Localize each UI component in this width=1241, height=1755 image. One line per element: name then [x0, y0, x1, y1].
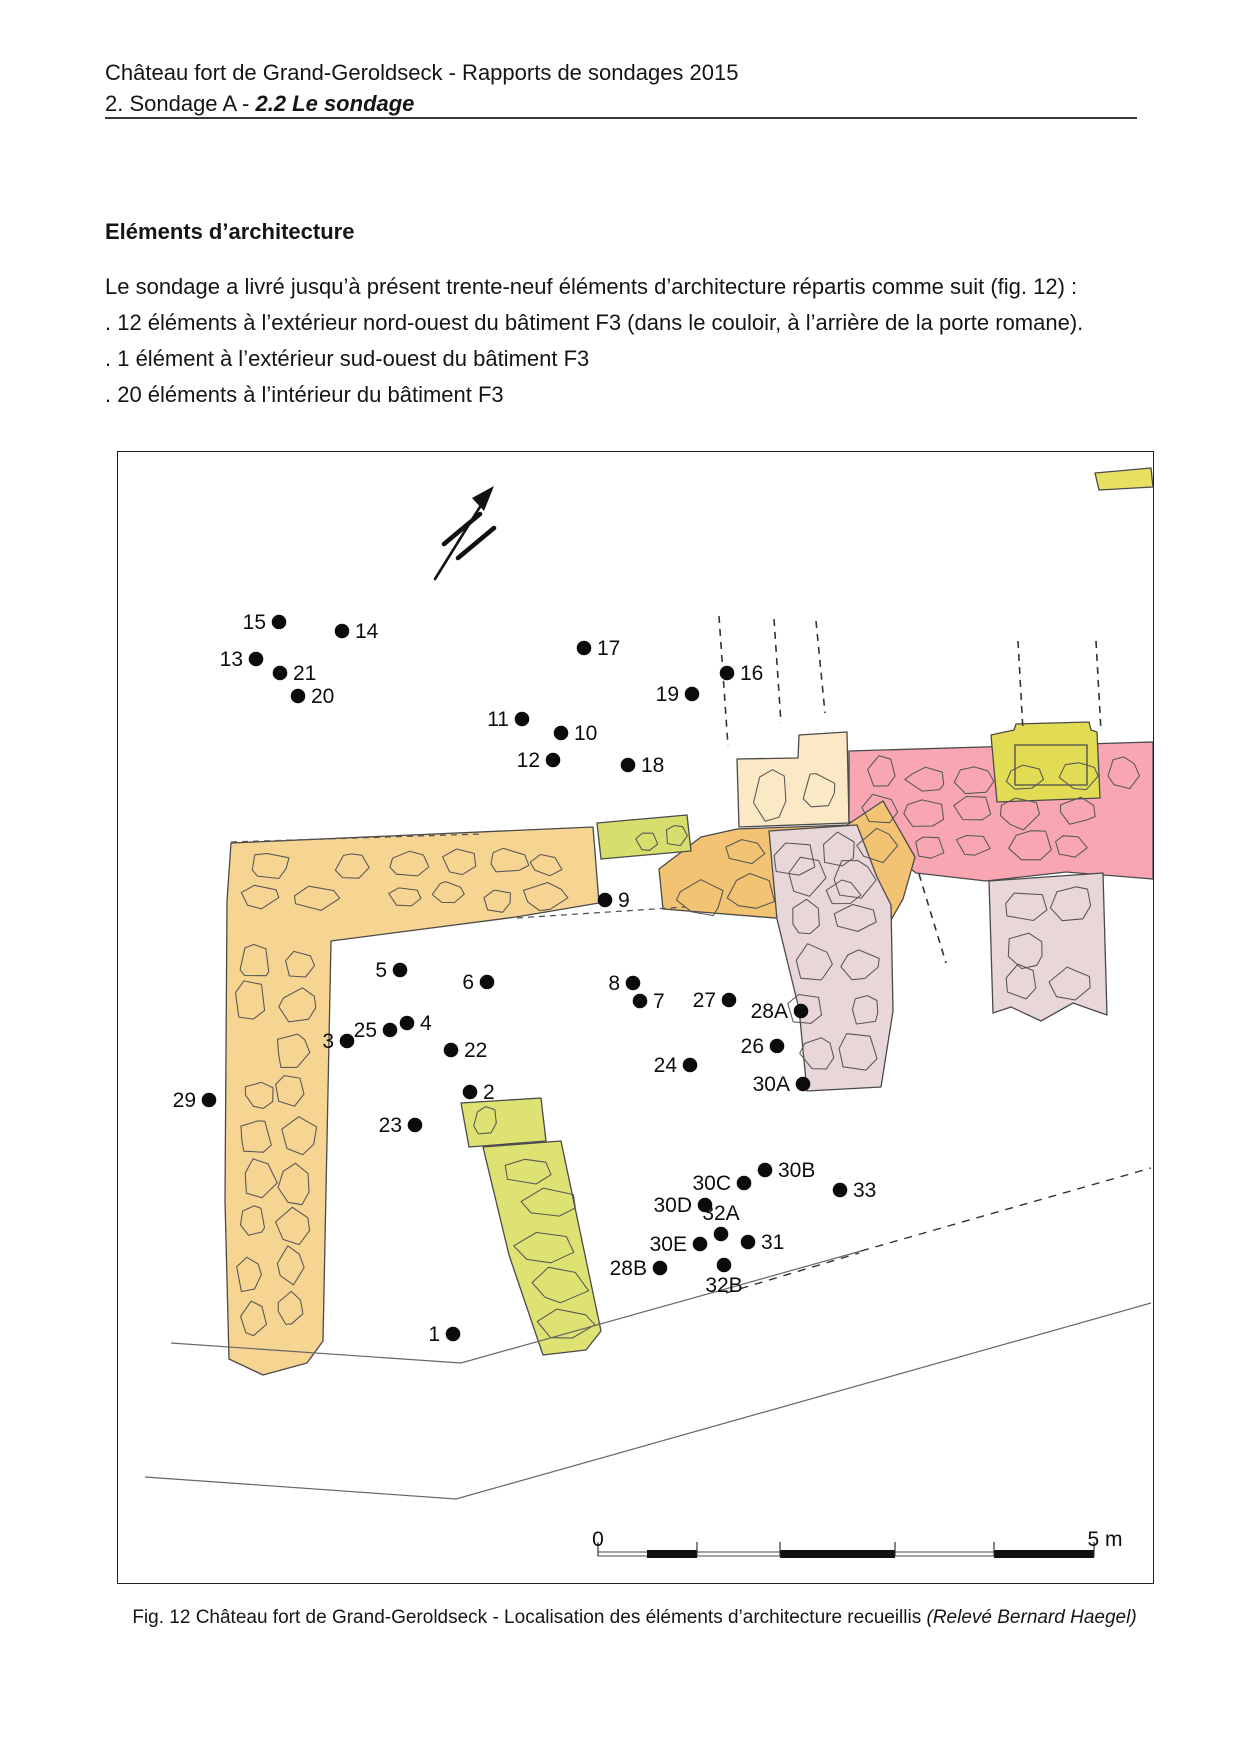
list-item: . 20 éléments à l’intérieur du bâtiment …: [105, 382, 504, 408]
scale-zero-label: 0: [592, 1528, 604, 1551]
scale-max-label: 5 m: [1087, 1528, 1122, 1551]
caption-text: Fig. 12 Château fort de Grand-Geroldseck…: [132, 1607, 926, 1628]
point-11: [515, 712, 530, 727]
point-label-29: 29: [173, 1089, 196, 1112]
point-24: [683, 1058, 698, 1073]
point-label-24: 24: [654, 1054, 678, 1077]
point-32A: [714, 1227, 729, 1242]
point-25: [383, 1023, 398, 1038]
point-label-3: 3: [322, 1030, 334, 1053]
point-29: [202, 1093, 217, 1108]
wall-yellowgreen-top-block: [461, 1098, 546, 1147]
point-label-13: 13: [220, 648, 243, 671]
point-label-19: 19: [656, 683, 679, 706]
point-label-5: 5: [375, 959, 387, 982]
site-plan: 0 5 m 1234567891011121314151617181920212…: [118, 452, 1153, 1583]
list-item: . 12 éléments à l’extérieur nord-ouest d…: [105, 310, 1083, 336]
point-label-14: 14: [355, 620, 379, 643]
point-2: [463, 1085, 478, 1100]
point-28B: [653, 1261, 668, 1276]
figure-12-plan: 0 5 m 1234567891011121314151617181920212…: [117, 451, 1154, 1584]
point-label-31: 31: [761, 1231, 784, 1254]
wall-yellowgreen-block: [991, 722, 1100, 802]
point-26: [770, 1039, 785, 1054]
point-label-25: 25: [354, 1019, 377, 1042]
header-chapter: 2. Sondage A -: [105, 91, 255, 116]
point-8: [626, 976, 641, 991]
point-31: [741, 1235, 756, 1250]
point-20: [291, 689, 306, 704]
point-label-17: 17: [597, 637, 620, 660]
point-label-23: 23: [379, 1114, 402, 1137]
point-label-30B: 30B: [778, 1159, 815, 1182]
point-14: [335, 624, 350, 639]
walls: [225, 468, 1153, 1375]
point-label-28A: 28A: [751, 1000, 788, 1023]
point-21: [273, 666, 288, 681]
point-4: [400, 1016, 415, 1031]
point-13: [249, 652, 264, 667]
header-rule: [105, 117, 1137, 119]
point-30E: [693, 1237, 708, 1252]
point-16: [720, 666, 735, 681]
point-3: [340, 1034, 355, 1049]
header-line-2: 2. Sondage A - 2.2 Le sondage: [105, 91, 414, 117]
list-item: . 1 élément à l’extérieur sud-ouest du b…: [105, 346, 589, 372]
wall-yellow-strip: [1095, 468, 1153, 490]
point-7: [633, 994, 648, 1009]
point-label-12: 12: [517, 749, 540, 772]
intro-paragraph: Le sondage a livré jusqu’à présent trent…: [105, 274, 1077, 300]
point-label-20: 20: [311, 685, 334, 708]
point-label-21: 21: [293, 662, 316, 685]
point-label-11: 11: [487, 708, 509, 731]
point-label-16: 16: [740, 662, 763, 685]
point-label-4: 4: [420, 1012, 432, 1035]
point-label-22: 22: [464, 1039, 487, 1062]
point-label-1: 1: [428, 1323, 440, 1346]
report-page: Château fort de Grand-Geroldseck - Rappo…: [0, 0, 1241, 1755]
point-32B: [717, 1258, 732, 1273]
point-label-9: 9: [618, 889, 630, 912]
point-28A: [794, 1004, 809, 1019]
wall-yellowgreen-slant: [483, 1141, 601, 1355]
point-label-10: 10: [574, 722, 597, 745]
point-label-30E: 30E: [650, 1233, 687, 1256]
point-label-7: 7: [653, 990, 665, 1013]
point-18: [621, 758, 636, 773]
point-15: [272, 615, 287, 630]
point-label-15: 15: [243, 611, 266, 634]
point-30C: [737, 1176, 752, 1191]
point-30B: [758, 1163, 773, 1178]
point-label-30C: 30C: [692, 1172, 731, 1195]
section-title: Eléments d’architecture: [105, 219, 354, 245]
north-arrow: [435, 486, 494, 579]
point-label-18: 18: [641, 754, 664, 777]
point-23: [408, 1118, 423, 1133]
point-label-26: 26: [741, 1035, 764, 1058]
point-12: [546, 753, 561, 768]
point-label-28B: 28B: [610, 1257, 647, 1280]
point-label-32A: 32A: [702, 1202, 739, 1225]
point-1: [446, 1327, 461, 1342]
point-9: [598, 893, 613, 908]
point-17: [577, 641, 592, 656]
figure-caption: Fig. 12 Château fort de Grand-Geroldseck…: [117, 1607, 1152, 1629]
point-10: [554, 726, 569, 741]
point-33: [833, 1183, 848, 1198]
point-22: [444, 1043, 459, 1058]
point-label-33: 33: [853, 1179, 876, 1202]
point-6: [480, 975, 495, 990]
header-section: 2.2 Le sondage: [255, 91, 414, 116]
point-label-30A: 30A: [753, 1073, 790, 1096]
caption-credit: (Relevé Bernard Haegel): [927, 1607, 1137, 1628]
scale-bar: 0 5 m: [592, 1528, 1122, 1558]
point-19: [685, 687, 700, 702]
point-30A: [796, 1077, 811, 1092]
point-label-27: 27: [693, 989, 716, 1012]
point-27: [722, 993, 737, 1008]
wall-mauve-right: [989, 873, 1107, 1021]
point-5: [393, 963, 408, 978]
point-label-8: 8: [608, 972, 620, 995]
wall-cream: [737, 732, 849, 827]
header-line-1: Château fort de Grand-Geroldseck - Rappo…: [105, 60, 739, 86]
point-label-30D: 30D: [653, 1194, 692, 1217]
point-label-32B: 32B: [705, 1274, 742, 1297]
wall-yellowgreen-row: [597, 815, 691, 859]
point-label-6: 6: [462, 971, 474, 994]
point-label-2: 2: [483, 1081, 495, 1104]
